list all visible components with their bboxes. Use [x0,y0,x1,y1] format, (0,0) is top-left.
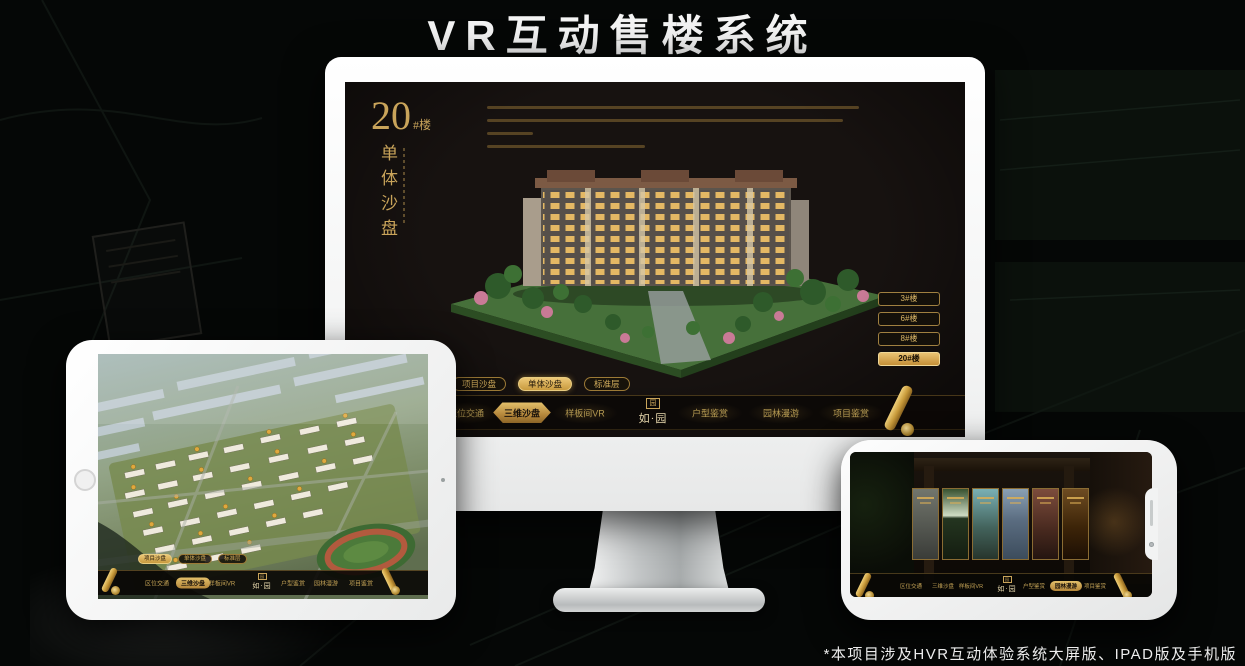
nav-item-project-view[interactable]: 项目鉴赏 [819,402,883,423]
sandbox-subtabs: 项目沙盘 单体沙盘 标准层 [452,377,630,391]
phone-notch [1145,488,1158,560]
background-plaque [92,221,203,348]
phone-nav-item-location[interactable]: 区位交通 [895,582,927,590]
floor-button-6[interactable]: 6#楼 [878,312,940,326]
ipad-subtab-project-sandbox[interactable]: 项目沙盘 [138,554,172,564]
block-number: 20 [371,93,411,138]
ipad-subtab-standard-floor[interactable]: 标准层 [218,554,247,564]
foliage-image [850,452,914,584]
page-title: VR互动售楼系统 [0,2,1245,63]
gallery-panel[interactable] [1002,488,1029,560]
floor-button-3[interactable]: 3#楼 [878,292,940,306]
gallery-panel[interactable] [1062,488,1089,560]
phone-bottom-nav: 区位交通 三维沙盘 样板间VR 园 如·园 户型鉴赏 园林漫游 项目鉴赏 [850,573,1152,597]
brand-logo: 园 如·园 [623,398,683,426]
nav-item-unit-plans[interactable]: 户型鉴赏 [678,402,742,423]
monitor-stand [589,509,729,591]
gate-beam-image [886,458,1116,471]
gallery-panel[interactable] [972,488,999,560]
subtab-project-sandbox[interactable]: 项目沙盘 [452,377,506,391]
ipad-nav-item-location[interactable]: 区位交通 [140,579,174,588]
ipad-screen: 项目沙盘 单体沙盘 标准层 区位交通 三维沙盘 样板间VR 园 如·园 户型鉴赏… [98,354,428,599]
phone-nav-item-garden-roam[interactable]: 园林漫游 [1050,581,1082,591]
front-camera-icon [1149,542,1154,547]
speaker-icon [1150,500,1153,526]
nav-item-3d-sandbox[interactable]: 三维沙盘 [490,402,554,423]
brand-seal-icon: 园 [646,398,660,409]
ipad-tablet-frame: 项目沙盘 单体沙盘 标准层 区位交通 三维沙盘 样板间VR 园 如·园 户型鉴赏… [66,340,456,620]
home-button[interactable] [74,469,96,491]
phone-nav-item-project-view[interactable]: 项目鉴赏 [1079,582,1111,590]
block-suffix: #楼 [413,118,431,132]
nav-item-garden-roam[interactable]: 园林漫游 [749,402,813,423]
block-heading: 20#楼 [371,94,431,138]
camera-icon [441,478,445,482]
ipad-brand-seal-icon: 园 [258,573,267,580]
scene-gallery [912,488,1089,560]
ipad-nav-item-showroom-vr[interactable]: 样板间VR [205,579,239,588]
gallery-panel[interactable] [942,488,969,560]
block-subtitle-decoration [403,148,405,226]
phone-scroll-handle-right-icon [1118,572,1125,597]
ipad-subtab-single-sandbox[interactable]: 单体沙盘 [178,554,212,564]
ipad-nav-item-garden-roam[interactable]: 园林漫游 [309,579,343,588]
scroll-handle-icon [893,384,904,432]
ipad-nav-item-unit-plans[interactable]: 户型鉴赏 [276,579,310,588]
phone-screen: 区位交通 三维沙盘 样板间VR 园 如·园 户型鉴赏 园林漫游 项目鉴赏 [850,452,1152,597]
description-paragraph [487,106,859,158]
ipad-brand-logo-text: 如·园 [247,581,277,591]
floor-button-8[interactable]: 8#楼 [878,332,940,346]
phone-scroll-handle-left-icon [860,572,867,597]
monitor-stand-base [553,588,765,612]
phone-nav-item-unit-plans[interactable]: 户型鉴赏 [1018,582,1050,590]
subtab-standard-floor[interactable]: 标准层 [584,377,630,391]
gallery-panel[interactable] [912,488,939,560]
lantern-glow-image [1084,482,1144,562]
phone-nav-item-showroom-vr[interactable]: 样板间VR [955,582,987,590]
floor-button-group: 3#楼 6#楼 8#楼 20#楼 [878,292,940,366]
brand-logo-text: 如·园 [623,410,683,426]
ipad-nav-item-project-view[interactable]: 项目鉴赏 [344,579,378,588]
subtab-single-sandbox[interactable]: 单体沙盘 [518,377,572,391]
building-render-image [443,146,893,384]
gallery-panel[interactable] [1032,488,1059,560]
ipad-scroll-handle-left-icon [106,567,113,593]
ipad-bottom-nav: 区位交通 三维沙盘 样板间VR 园 如·园 户型鉴赏 园林漫游 项目鉴赏 [98,570,428,595]
phone-brand-seal-icon: 园 [1003,576,1012,583]
ipad-scroll-handle-right-icon [386,567,393,593]
nav-item-showroom-vr[interactable]: 样板间VR [553,402,617,423]
iphone-frame: 区位交通 三维沙盘 样板间VR 园 如·园 户型鉴赏 园林漫游 项目鉴赏 [841,440,1177,620]
ipad-brand-logo: 园 如·园 [247,573,277,591]
footnote: *本项目涉及HVR互动体验系统大屏版、IPAD版及手机版 [824,643,1237,664]
floor-button-20[interactable]: 20#楼 [878,352,940,366]
ipad-subtabs: 项目沙盘 单体沙盘 标准层 [138,554,247,564]
poster-stage: VR互动售楼系统 [0,0,1245,666]
block-subtitle-vertical: 单体沙盘 [375,144,400,274]
